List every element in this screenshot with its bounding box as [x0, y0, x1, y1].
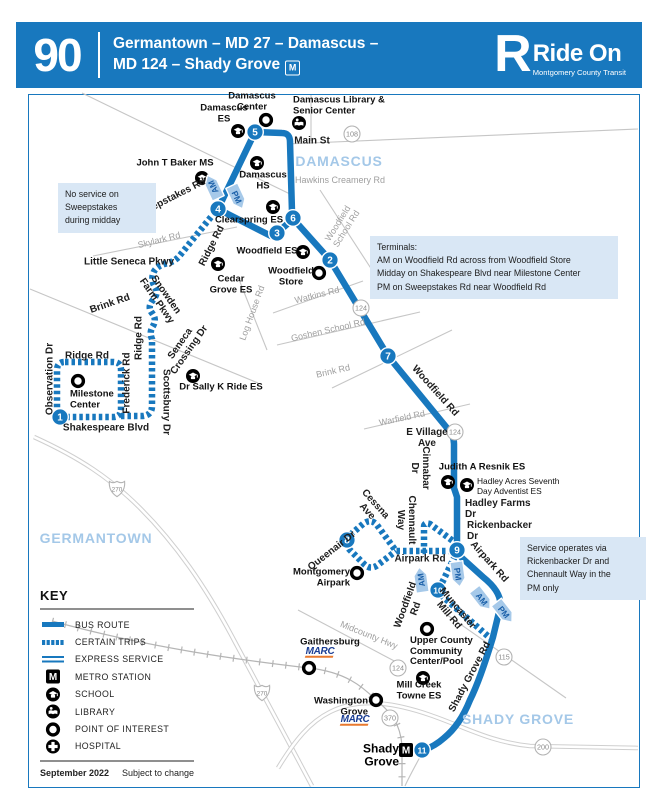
hospital-swatch-icon	[40, 738, 66, 755]
svg-text:MARC: MARC	[341, 714, 371, 725]
school-icon	[231, 124, 245, 138]
key-item-hospital: HOSPITAL	[40, 738, 194, 755]
key-item-poi: POINT OF INTEREST	[40, 720, 194, 737]
school-icon	[186, 369, 200, 383]
poi-icon	[73, 376, 84, 387]
direction-arrow-am: AM	[413, 566, 429, 593]
key-divider-bottom	[40, 760, 194, 762]
stop-marker-2: 2	[322, 252, 339, 269]
svg-text:200: 200	[537, 742, 549, 751]
key-item-label: CERTAIN TRIPS	[75, 637, 146, 647]
poi-icon	[352, 568, 363, 579]
transit-map-page: 90 Germantown – MD 27 – Damascus – MD 12…	[0, 0, 659, 803]
key-panel: KEY BUS ROUTECERTAIN TRIPSEXPRESS SERVIC…	[40, 588, 194, 778]
svg-text:AM: AM	[415, 573, 427, 587]
stop-marker-3: 3	[269, 225, 286, 242]
key-item-label: EXPRESS SERVICE	[75, 654, 163, 664]
poi-icon	[261, 115, 272, 126]
highway-i370	[278, 703, 638, 768]
poi-icon	[314, 268, 325, 279]
school-icon	[211, 257, 225, 271]
svg-text:M: M	[49, 672, 57, 683]
school-swatch-icon	[40, 686, 66, 703]
svg-text:6: 6	[290, 213, 296, 224]
poi-icon	[304, 663, 315, 674]
school-icon	[250, 156, 264, 170]
key-item-label: SCHOOL	[75, 689, 115, 699]
svg-text:5: 5	[252, 127, 258, 138]
direction-arrow-pm: PM	[450, 561, 466, 588]
key-item-label: POINT OF INTEREST	[75, 724, 169, 734]
stop-marker-4: 4	[210, 201, 227, 218]
school-icon	[441, 475, 455, 489]
bus-swatch-icon	[40, 616, 66, 633]
library-swatch-icon	[40, 703, 66, 720]
svg-text:11: 11	[418, 745, 427, 755]
key-item-metro: MMETRO STATION	[40, 668, 194, 685]
svg-text:2: 2	[327, 255, 333, 266]
stop-marker-11: 11	[414, 742, 431, 759]
key-item-certain: CERTAIN TRIPS	[40, 633, 194, 650]
stop-marker-5: 5	[247, 124, 264, 141]
direction-arrow-pm: PM	[226, 183, 249, 212]
stop-marker-9: 9	[449, 542, 466, 559]
svg-text:M: M	[402, 746, 410, 757]
route-shield: 124	[353, 300, 369, 316]
school-icon	[416, 671, 430, 685]
stop-marker-6: 6	[285, 210, 302, 227]
marc-logo: MARC	[305, 646, 336, 658]
key-divider-top	[40, 608, 194, 610]
key-item-label: BUS ROUTE	[75, 620, 130, 630]
svg-text:1: 1	[57, 412, 63, 423]
key-item-label: HOSPITAL	[75, 741, 121, 751]
poi-icon	[371, 695, 382, 706]
stop-marker-1: 1	[52, 409, 69, 426]
route-shield: 200	[535, 739, 551, 755]
svg-text:8: 8	[344, 535, 350, 546]
svg-text:124: 124	[392, 663, 404, 672]
key-item-label: LIBRARY	[75, 707, 115, 717]
svg-text:270: 270	[112, 486, 123, 493]
route-shield: 370	[382, 710, 398, 726]
key-item-school: SCHOOL	[40, 686, 194, 703]
effective-date: September 2022	[40, 768, 109, 778]
svg-text:115: 115	[498, 652, 509, 661]
express-swatch-icon	[40, 651, 66, 668]
svg-text:124: 124	[449, 427, 461, 436]
svg-text:9: 9	[454, 545, 460, 556]
school-icon	[296, 245, 310, 259]
key-footer: September 2022 Subject to change	[40, 768, 194, 778]
svg-text:10: 10	[433, 585, 443, 595]
route-shield: 124	[390, 660, 406, 676]
svg-text:370: 370	[384, 713, 396, 722]
svg-text:7: 7	[385, 351, 391, 362]
svg-text:124: 124	[355, 303, 367, 312]
bus-route-line	[218, 132, 500, 750]
svg-text:108: 108	[346, 129, 358, 138]
svg-text:3: 3	[274, 228, 280, 239]
metro-swatch-icon: M	[40, 668, 66, 685]
stop-marker-7: 7	[380, 348, 397, 365]
subject-to-change: Subject to change	[122, 768, 194, 778]
key-item-bus: BUS ROUTE	[40, 616, 194, 633]
metro-icon: M	[399, 743, 413, 757]
library-icon	[292, 116, 306, 130]
key-item-library: LIBRARY	[40, 703, 194, 720]
certain-swatch-icon	[40, 634, 66, 651]
route-shield: 124	[447, 424, 463, 440]
school-icon	[266, 200, 280, 214]
key-item-label: METRO STATION	[75, 672, 151, 682]
route-shield: 108	[344, 126, 360, 142]
svg-text:4: 4	[215, 204, 221, 215]
key-item-express: EXPRESS SERVICE	[40, 651, 194, 668]
stop-marker-8: 8	[339, 532, 356, 549]
poi-icon	[422, 624, 433, 635]
marc-logo: MARC	[340, 714, 371, 726]
svg-text:270: 270	[257, 690, 268, 697]
svg-text:PM: PM	[452, 567, 464, 581]
key-title: KEY	[40, 588, 194, 603]
key-items: BUS ROUTECERTAIN TRIPSEXPRESS SERVICEMME…	[40, 616, 194, 755]
school-icon	[460, 478, 474, 492]
poi-swatch-icon	[40, 721, 66, 738]
stop-marker-10: 10	[430, 582, 447, 599]
svg-text:MARC: MARC	[306, 646, 336, 657]
route-shield: 115	[496, 649, 512, 665]
